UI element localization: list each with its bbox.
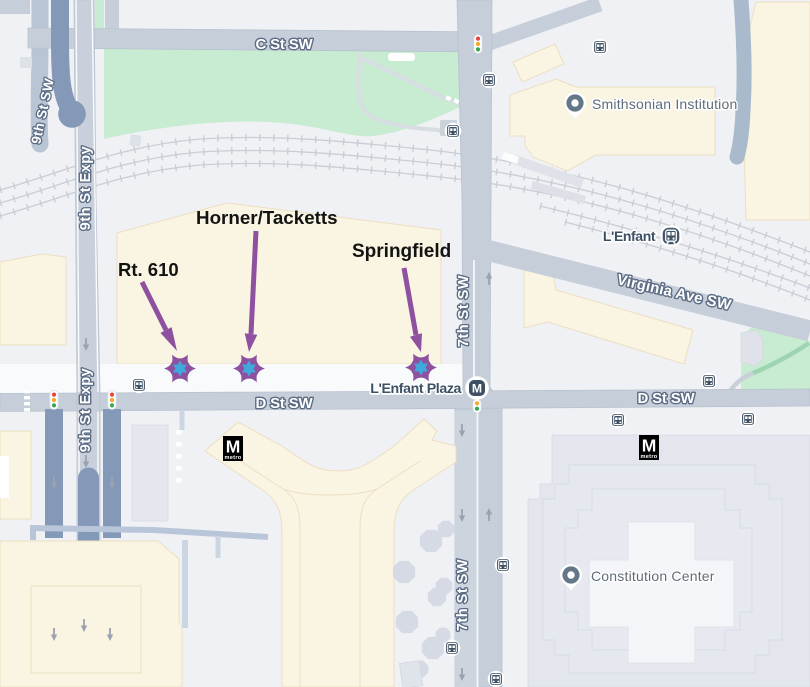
svg-text:D St SW: D St SW bbox=[638, 390, 696, 407]
svg-text:Springfield: Springfield bbox=[352, 241, 451, 262]
svg-text:Smithsonian Institution: Smithsonian Institution bbox=[592, 96, 737, 112]
svg-text:9th St Expy: 9th St Expy bbox=[78, 146, 94, 230]
svg-text:Constitution Center: Constitution Center bbox=[591, 568, 715, 584]
svg-text:metro: metro bbox=[224, 455, 241, 461]
svg-text:M: M bbox=[472, 382, 482, 396]
svg-text:M: M bbox=[642, 436, 657, 456]
svg-text:Horner/Tacketts: Horner/Tacketts bbox=[196, 207, 338, 228]
svg-text:7th St SW: 7th St SW bbox=[455, 559, 471, 631]
svg-text:D St SW: D St SW bbox=[256, 395, 314, 412]
svg-text:M: M bbox=[226, 437, 241, 457]
svg-text:9th St Expy: 9th St Expy bbox=[78, 368, 94, 452]
svg-text:C St SW: C St SW bbox=[256, 36, 314, 53]
svg-text:L'Enfant: L'Enfant bbox=[603, 228, 656, 244]
svg-text:metro: metro bbox=[640, 454, 657, 460]
svg-text:Rt. 610: Rt. 610 bbox=[118, 259, 179, 280]
svg-text:L'Enfant Plaza: L'Enfant Plaza bbox=[370, 381, 461, 397]
svg-text:7th St SW: 7th St SW bbox=[456, 275, 472, 347]
